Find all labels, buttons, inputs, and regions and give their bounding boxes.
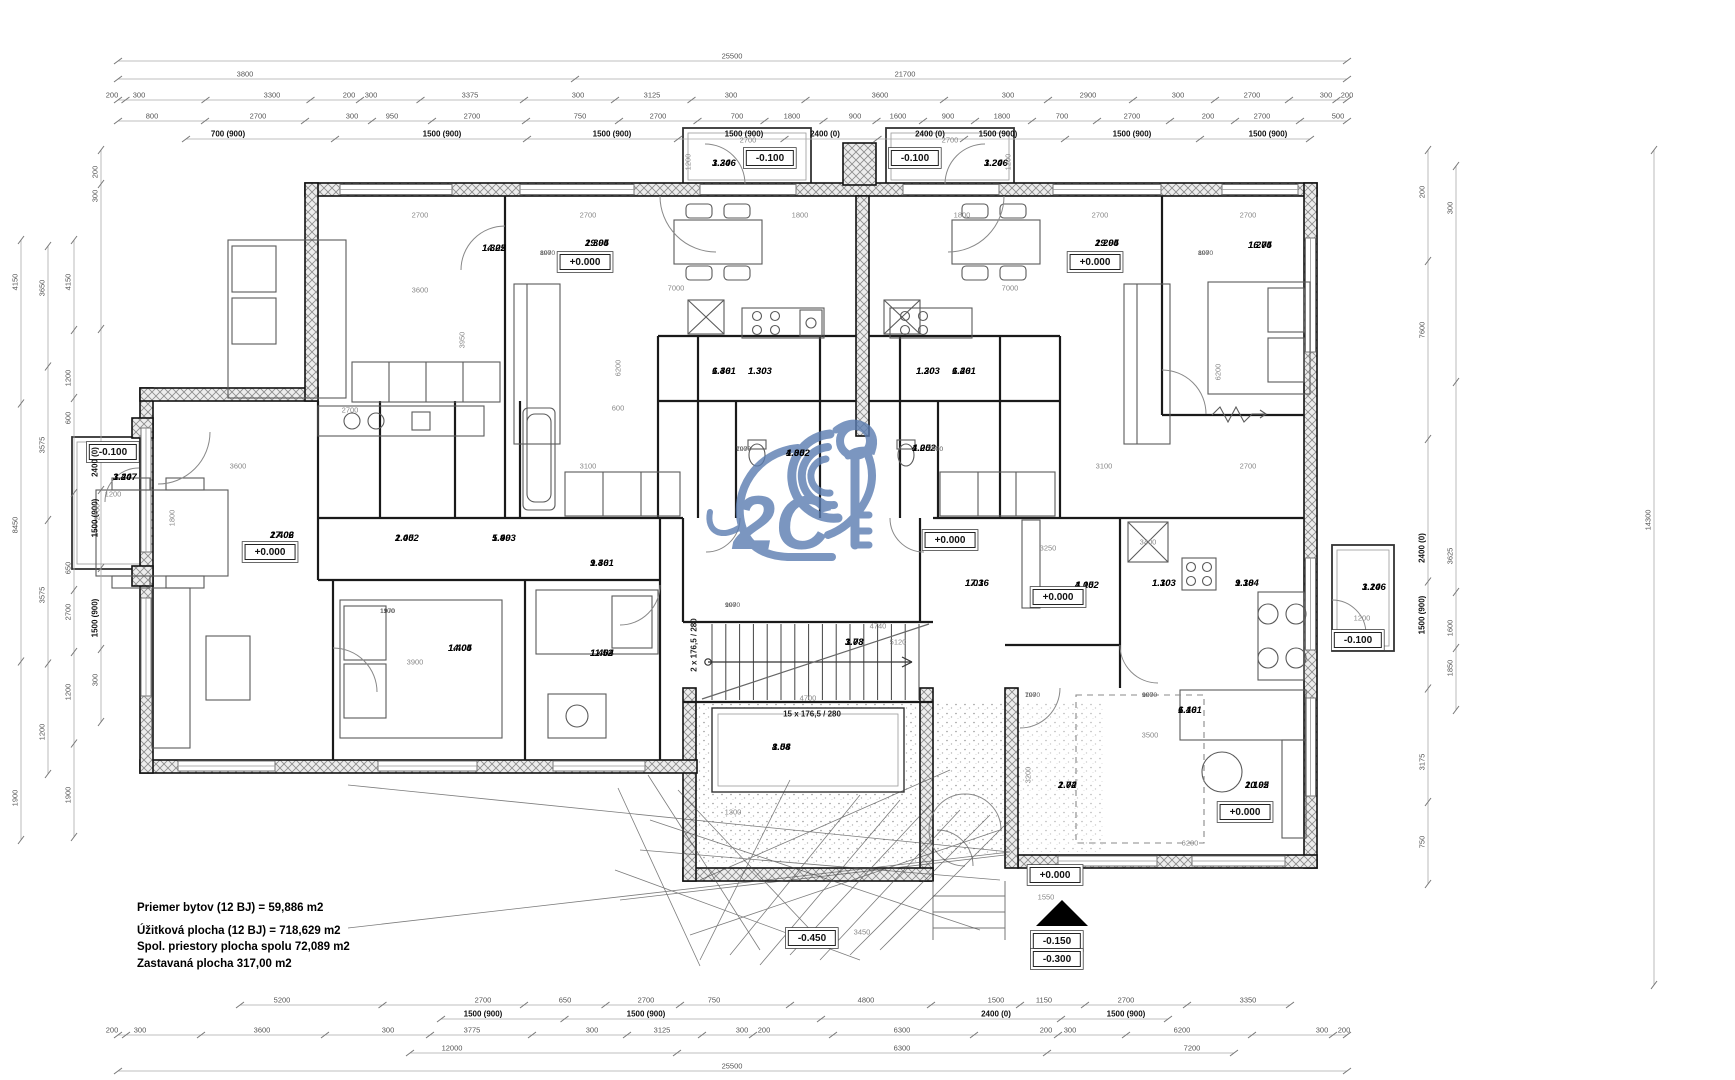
dimension-label: 2400 (0) xyxy=(981,1010,1011,1019)
dimension-label: 1150 xyxy=(1036,996,1052,1005)
elevation-marker: -0.100 xyxy=(746,150,794,166)
dimension-label: 200 xyxy=(758,1026,771,1035)
dimension-label: 1200 xyxy=(1004,154,1013,171)
dimension-label: 2700 xyxy=(475,996,492,1005)
dimension-label: 1500 (900) xyxy=(1249,130,1288,139)
elevation-marker: +0.000 xyxy=(245,544,296,560)
dimension-label: 2700 xyxy=(1244,91,1261,100)
dimension-label: 200 xyxy=(1202,112,1215,121)
dimension-label: 300 xyxy=(1064,1026,1077,1035)
dimension-label: 1800 xyxy=(168,510,177,527)
dimension-label: 2700 xyxy=(1124,112,1141,121)
dimension-label: 8450 xyxy=(11,517,20,534)
dimension-label: 300 xyxy=(586,1026,599,1035)
dimension-label: 1500 xyxy=(988,996,1005,1005)
dimension-label: 3350 xyxy=(1240,996,1257,1005)
dimension-label: 3200 xyxy=(1024,767,1033,784)
dimension-label: 3900 xyxy=(407,658,424,667)
dimension-label: 300 xyxy=(91,674,100,687)
dimension-label: 1500 (900) xyxy=(91,599,100,638)
dimension-label: 700 xyxy=(1056,112,1069,121)
dimension-label: 200 xyxy=(91,166,100,179)
dimension-label: 200 xyxy=(1418,186,1427,199)
dimension-label: 500 xyxy=(1332,112,1345,121)
dimension-label: 3650 xyxy=(38,280,47,297)
dimension-label: 6300 xyxy=(894,1026,911,1035)
dimension-label: 300 xyxy=(725,91,738,100)
dimension-label: 1850 xyxy=(1446,660,1455,677)
staircase-arrow xyxy=(702,624,929,699)
dimension-label: 2700 xyxy=(1240,462,1257,471)
summary-line: Spol. priestory plocha spolu 72,089 m2 xyxy=(137,939,350,956)
dimension-label: 300 xyxy=(134,1026,147,1035)
dimension-label: 1800 xyxy=(784,112,801,121)
dimension-label: 3600 xyxy=(254,1026,271,1035)
entry-steps-group xyxy=(933,881,1005,940)
dimension-label: 300 xyxy=(1446,202,1455,215)
dimension-label: 200 xyxy=(106,1026,119,1035)
dimension-label: 1200 xyxy=(105,490,122,499)
watermark-lion-key-logo: 2C xyxy=(709,423,873,566)
dimension-label: 6200 xyxy=(614,360,623,377)
dimension-label: 4800 xyxy=(858,996,875,1005)
dimension-label: 3600 xyxy=(872,91,889,100)
dimension-label: 2700 xyxy=(638,996,655,1005)
dimension-label: 1600 xyxy=(1446,620,1455,637)
dimension-label: 1200 xyxy=(38,724,47,741)
dimension-label: 3600 xyxy=(230,462,247,471)
dimension-label: 300 xyxy=(572,91,585,100)
floor-plan-page: 2C 1.30514.221.30429.951.3063.241.3016.4… xyxy=(0,0,1735,1080)
dimension-label: 2700 xyxy=(1254,112,1271,121)
dimension-label: 6300 xyxy=(894,1044,911,1053)
dimension-label: 700 (900) xyxy=(211,130,245,139)
dimension-label: 3600 xyxy=(412,286,429,295)
dimension-label: 3575 xyxy=(38,587,47,604)
dimension-label: 6200 xyxy=(1214,364,1223,381)
summary-line: Priemer bytov (12 BJ) = 59,886 m2 xyxy=(137,900,350,917)
dimension-label: 4150 xyxy=(64,274,73,291)
dimension-label: 3300 xyxy=(264,91,281,100)
dimension-label: 2700 xyxy=(64,604,73,621)
dimension-label: 2700 xyxy=(1092,211,1109,220)
dimension-label: 7000 xyxy=(668,284,685,293)
dimension-label: 2400 (0) xyxy=(810,130,840,139)
dimension-label: 1500 (900) xyxy=(1113,130,1152,139)
dimension-label: 300 xyxy=(365,91,378,100)
dimension-label: 1200 xyxy=(64,370,73,387)
dimension-label: 3450 xyxy=(854,928,871,937)
dimension-label: 25500 xyxy=(722,1062,743,1071)
dimension-label: 5120 xyxy=(890,638,907,647)
dimension-label: 1500 (900) xyxy=(423,130,462,139)
dimension-label: 300 xyxy=(133,91,146,100)
dimension-label: 3775 xyxy=(464,1026,481,1035)
dimension-label: 1600 xyxy=(890,112,907,121)
elevation-marker: -0.100 xyxy=(891,150,939,166)
dimension-label: 3800 xyxy=(237,70,254,79)
dimension-label: 300 xyxy=(1316,1026,1329,1035)
elevation-marker: +0.000 xyxy=(560,254,611,270)
dimension-label: 2400 (0) xyxy=(1418,533,1427,563)
dimension-label: 3500 xyxy=(1142,731,1159,740)
dimension-label: 2400 (0) xyxy=(915,130,945,139)
dimension-label: 1500 (900) xyxy=(1107,1010,1146,1019)
dimension-label: 800 xyxy=(146,112,159,121)
dimension-label: 1500 (900) xyxy=(464,1010,503,1019)
dimension-label: 200 xyxy=(106,91,119,100)
dimension-label: 3625 xyxy=(1446,548,1455,565)
elevation-marker: +0.000 xyxy=(1220,804,1271,820)
dimension-label: 2700 xyxy=(342,406,359,415)
dimension-label: 200 xyxy=(343,91,356,100)
dimension-label: 1550 xyxy=(1038,893,1055,902)
dimension-label: 600 xyxy=(64,412,73,425)
dimension-label: 2700 xyxy=(740,136,757,145)
stair-count-note: 15 x 176,5 / 280 xyxy=(783,710,841,719)
elevation-marker: -0.100 xyxy=(1334,632,1382,648)
dimension-label: 200 xyxy=(1040,1026,1053,1035)
dimension-label: 3175 xyxy=(1418,754,1427,771)
stair-entry-note: 2 x 176,5 / 280 xyxy=(690,618,699,671)
pool-group xyxy=(712,708,904,792)
dimension-label: 3375 xyxy=(462,91,479,100)
dimension-label: 6200 xyxy=(1174,1026,1191,1035)
elevation-marker: +0.000 xyxy=(925,532,976,548)
dimension-label: 3250 xyxy=(1040,544,1057,553)
elevation-marker: -0.300 xyxy=(1033,951,1081,967)
dimension-label: 3950 xyxy=(458,332,467,349)
elevation-marker: +0.000 xyxy=(1070,254,1121,270)
dimension-label: 200 xyxy=(1341,91,1354,100)
entrance-triangle-marker xyxy=(1036,900,1088,926)
dimension-label: 7000 xyxy=(1002,284,1019,293)
dimension-label: 1500 (900) xyxy=(593,130,632,139)
dimension-label: 4740 xyxy=(870,622,887,631)
dimension-label: 300 xyxy=(91,190,100,203)
dimension-label: 300 xyxy=(736,1026,749,1035)
dimension-label: 600 xyxy=(612,404,625,413)
dimension-label: 1800 xyxy=(994,112,1011,121)
dimension-label: 1200 xyxy=(684,154,693,171)
dimension-label: 1500 (900) xyxy=(1418,596,1427,635)
dimension-label: 1500 (900) xyxy=(627,1010,666,1019)
elevation-marker: -0.150 xyxy=(1033,933,1081,949)
dimension-label: 1200 xyxy=(1354,614,1371,623)
dimension-label: 2700 xyxy=(412,211,429,220)
dimension-label: 6200 xyxy=(1182,839,1199,848)
dimension-label: 200 xyxy=(1338,1026,1351,1035)
dimension-label: 2700 xyxy=(93,504,102,521)
summary-line: Úžitková plocha (12 BJ) = 718,629 m2 xyxy=(137,923,350,940)
dimension-label: 900 xyxy=(849,112,862,121)
dimension-label: 7600 xyxy=(1418,322,1427,339)
dimension-label: 650 xyxy=(559,996,572,1005)
dimension-label: 2700 xyxy=(464,112,481,121)
dimension-label: 700 xyxy=(731,112,744,121)
dimension-label: 4150 xyxy=(11,274,20,291)
dimension-label: 650 xyxy=(64,562,73,575)
dimension-label: 5200 xyxy=(274,996,291,1005)
dimension-label: 1200 xyxy=(64,684,73,701)
dimension-label: 1900 xyxy=(64,787,73,804)
dimension-label: 3400 xyxy=(1140,538,1157,547)
dimension-label: 1300 xyxy=(725,808,742,817)
dimension-label: 25500 xyxy=(722,52,743,61)
dimension-label: 1800 xyxy=(954,211,971,220)
dimension-label: 300 xyxy=(382,1026,395,1035)
dimension-label: 2700 xyxy=(1240,211,1257,220)
dimension-label: 1500 (900) xyxy=(979,130,1018,139)
dimension-label: 300 xyxy=(1002,91,1015,100)
dimension-label: 3100 xyxy=(1096,462,1113,471)
dimension-label: 750 xyxy=(574,112,587,121)
dimension-label: 300 xyxy=(1320,91,1333,100)
elevation-marker: -0.450 xyxy=(788,930,836,946)
elevation-marker: +0.000 xyxy=(1030,867,1081,883)
dimension-label: 3100 xyxy=(580,462,597,471)
watermark-letters: 2C xyxy=(731,481,831,566)
dimension-label: 300 xyxy=(346,112,359,121)
dimension-label: 7200 xyxy=(1184,1044,1201,1053)
elevation-marker: +0.000 xyxy=(1033,589,1084,605)
dimension-label: 750 xyxy=(708,996,721,1005)
dimension-label: 2700 xyxy=(942,136,959,145)
dimension-label: 3125 xyxy=(654,1026,671,1035)
area-summary-block: Priemer bytov (12 BJ) = 59,886 m2 Úžitko… xyxy=(137,900,350,973)
dimension-label: 1900 xyxy=(11,790,20,807)
summary-line: Zastavaná plocha 317,00 m2 xyxy=(137,956,350,973)
dimension-label: 2700 xyxy=(1118,996,1135,1005)
dimension-label: 4700 xyxy=(800,694,817,703)
dimension-label: 12000 xyxy=(442,1044,463,1053)
dimension-label: 14300 xyxy=(1644,510,1653,531)
dimension-label: 2400 (0) xyxy=(91,447,100,477)
dimension-label: 750 xyxy=(1418,836,1427,849)
dimension-label: 2900 xyxy=(1080,91,1097,100)
dimension-label: 2700 xyxy=(580,211,597,220)
dimension-label: 950 xyxy=(386,112,399,121)
dimension-label: 2700 xyxy=(250,112,267,121)
dimension-label: 3125 xyxy=(644,91,661,100)
dimension-label: 1800 xyxy=(792,211,809,220)
dimension-label: 900 xyxy=(942,112,955,121)
dimension-label: 2700 xyxy=(650,112,667,121)
dimension-label: 3575 xyxy=(38,437,47,454)
dimension-label: 21700 xyxy=(895,70,916,79)
dimension-label: 300 xyxy=(1172,91,1185,100)
